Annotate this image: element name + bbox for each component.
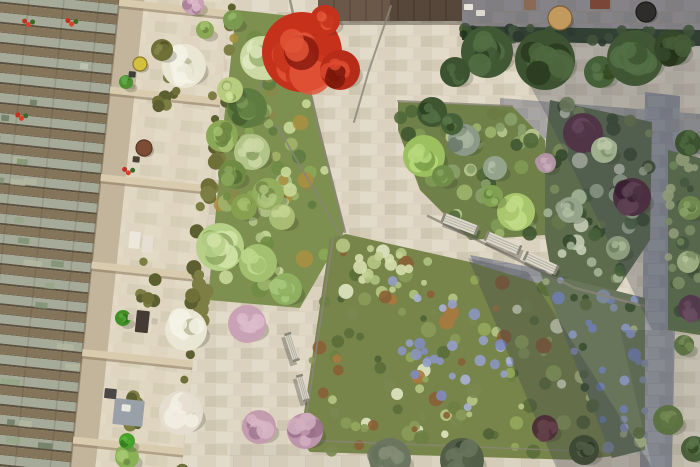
seat-maroon (590, 0, 610, 9)
courtyard-aerial-render (0, 0, 700, 467)
glass-reflection (45, 282, 54, 289)
glass-reflection (80, 63, 88, 70)
terrace-mat-grey (112, 398, 145, 427)
dining-table-dark (135, 310, 150, 333)
glass-reflection (7, 419, 15, 426)
chair-light (127, 314, 134, 321)
chair-white (476, 10, 485, 16)
chair-light (151, 318, 158, 325)
chair-dark (132, 156, 140, 163)
cushion-white (121, 404, 131, 412)
chair-white (464, 4, 473, 10)
courtyard-aerial-view (0, 0, 700, 467)
chair-dark (128, 71, 136, 78)
glass-reflection (1, 115, 9, 122)
terrace-table-dark (104, 388, 117, 399)
glass-reflection (18, 237, 30, 244)
glass-reflection (30, 99, 38, 106)
glass-reflection (14, 217, 24, 224)
lounger (141, 235, 154, 253)
planter-box (524, 0, 536, 10)
glass-reflection (17, 158, 28, 165)
lounger (128, 231, 141, 249)
glass-reflection (0, 177, 4, 184)
